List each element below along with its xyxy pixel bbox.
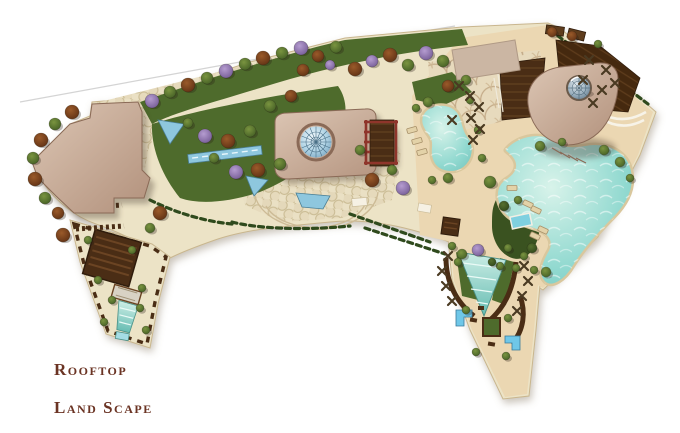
dome-ribs <box>567 76 591 100</box>
tree-icon <box>136 304 144 312</box>
tree-icon <box>219 64 233 78</box>
tree-icon <box>365 173 379 187</box>
tree-icon <box>294 41 308 55</box>
tree-icon <box>423 97 433 107</box>
tree-icon <box>94 276 102 284</box>
tree-icon <box>484 176 496 188</box>
tree-icon <box>145 94 159 108</box>
tree-icon <box>520 252 528 260</box>
white-slab <box>352 197 368 206</box>
tree-icon <box>599 145 609 155</box>
tree-icon <box>478 154 486 162</box>
tree-icon <box>383 48 397 62</box>
central-building <box>275 109 399 184</box>
sun-lounger-icon <box>507 186 517 191</box>
tree-icon <box>472 348 480 356</box>
tree-icon <box>39 192 51 204</box>
tree-icon <box>504 314 512 322</box>
tree-icon <box>209 153 219 163</box>
tree-icon <box>567 31 577 41</box>
tree-icon <box>366 55 378 67</box>
title-line-2: Land Scape <box>54 398 153 417</box>
shade-structure <box>441 217 460 236</box>
tree-icon <box>49 118 61 130</box>
tree-icon <box>34 133 48 147</box>
planter-cross-icon <box>448 297 456 305</box>
tree-icon <box>412 104 420 112</box>
tree-icon <box>594 40 602 48</box>
glass-dome-icon <box>298 124 334 160</box>
tree-icon <box>256 51 270 65</box>
tree-icon <box>488 258 496 266</box>
tree-icon <box>142 326 150 334</box>
tree-icon <box>276 47 288 59</box>
tree-icon <box>181 78 195 92</box>
tree-icon <box>615 157 625 167</box>
tree-icon <box>443 173 453 183</box>
dome-ribs <box>301 127 332 158</box>
planter-box <box>483 318 500 336</box>
tree-icon <box>244 125 256 137</box>
tree-icon <box>499 201 509 211</box>
tree-icon <box>312 50 324 62</box>
plan-title: Rooftop Land Scape <box>54 360 153 417</box>
tree-icon <box>198 129 212 143</box>
tree-icon <box>514 196 522 204</box>
tree-icon <box>402 59 414 71</box>
tree-icon <box>355 145 365 155</box>
tree-icon <box>274 158 286 170</box>
tree-icon <box>297 64 309 76</box>
tree-icon <box>428 176 436 184</box>
tree-icon <box>128 246 136 254</box>
tree-icon <box>221 134 235 148</box>
tree-icon <box>239 58 251 70</box>
tree-icon <box>387 165 397 175</box>
tree-icon <box>626 174 634 182</box>
tree-icon <box>504 244 512 252</box>
tree-icon <box>264 100 276 112</box>
tree-icon <box>442 80 454 92</box>
tree-icon <box>530 266 538 274</box>
title-line-1: Rooftop <box>54 360 127 379</box>
tree-icon <box>527 243 537 253</box>
tree-icon <box>547 27 557 37</box>
tree-icon <box>472 244 484 256</box>
tree-icon <box>419 46 433 60</box>
tree-icon <box>84 236 92 244</box>
tree-icon <box>541 267 551 277</box>
tree-icon <box>229 165 243 179</box>
tree-icon <box>502 352 510 360</box>
tree-icon <box>108 296 116 304</box>
tree-icon <box>52 207 64 219</box>
tree-icon <box>348 62 362 76</box>
tree-icon <box>56 228 70 242</box>
tree-icon <box>153 206 167 220</box>
tree-icon <box>145 223 155 233</box>
tree-icon <box>448 242 456 250</box>
tree-icon <box>512 264 520 272</box>
tree-icon <box>100 318 108 326</box>
tree-icon <box>558 138 566 146</box>
tree-icon <box>28 172 42 186</box>
tree-icon <box>535 141 545 151</box>
tree-icon <box>251 163 265 177</box>
tree-icon <box>437 55 449 67</box>
tree-icon <box>65 105 79 119</box>
tree-icon <box>454 258 462 266</box>
tree-icon <box>325 60 335 70</box>
tree-icon <box>462 306 470 314</box>
tree-icon <box>457 249 467 259</box>
rooftop-landscape-plan: Rooftop Land Scape <box>0 0 680 433</box>
tree-icon <box>285 90 297 102</box>
tree-icon <box>201 72 213 84</box>
tree-icon <box>183 118 193 128</box>
tree-icon <box>396 181 410 195</box>
tree-icon <box>330 41 342 53</box>
tree-icon <box>164 86 176 98</box>
tree-icon <box>138 284 146 292</box>
tree-icon <box>27 152 39 164</box>
